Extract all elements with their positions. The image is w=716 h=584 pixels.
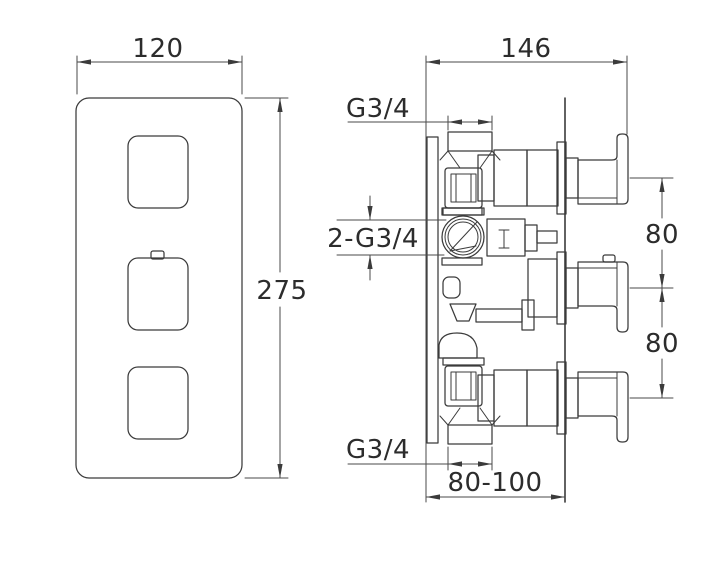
handle-spacing-lower-label: 80 — [645, 329, 679, 359]
side-view: 146 G3/4 2-G3/4 — [327, 34, 679, 502]
bottom-cartridge-step — [478, 375, 494, 421]
front-height-dim-label: 275 — [256, 276, 307, 306]
dim-recess-depth: 80-100 — [426, 468, 565, 500]
dim-handle-spacing: 80 80 — [630, 178, 679, 398]
bottom-valve-assembly — [440, 358, 628, 444]
front-width-dim-label: 120 — [132, 34, 183, 64]
top-valve-assembly — [440, 132, 628, 215]
handle-middle-side-tab — [603, 255, 615, 262]
middle-cartridge-body — [528, 259, 557, 317]
dim-outlet: 2-G3/4 — [327, 196, 446, 280]
middle-valve-body — [487, 219, 525, 256]
handle-middle-front — [128, 258, 188, 330]
blanking-plug — [443, 277, 460, 298]
top-inlet-thread-label: G3/4 — [346, 94, 410, 124]
handle-bottom-side — [578, 372, 628, 442]
dim-front-height: 275 — [245, 98, 308, 478]
technical-drawing-page: 120 275 — [0, 0, 716, 584]
top-cartridge-step — [478, 155, 494, 201]
dim-front-width: 120 — [77, 34, 242, 94]
dim-bottom-inlet: G3/4 — [346, 435, 492, 470]
outlet-thread-label: 2-G3/4 — [327, 224, 419, 254]
handle-middle-side — [578, 262, 628, 332]
trim-plate — [76, 98, 242, 478]
bottom-inlet-port — [448, 425, 492, 444]
recess-depth-range-label: 80-100 — [447, 468, 542, 498]
handle-spacing-upper-label: 80 — [645, 220, 679, 250]
front-view: 120 275 — [76, 34, 308, 478]
body-detail-features — [439, 277, 534, 358]
handle-top-front — [128, 136, 188, 208]
dim-top-inlet: G3/4 — [346, 94, 492, 130]
handle-bottom-front — [128, 367, 188, 439]
middle-valve-assembly — [442, 208, 628, 332]
mounting-bracket — [427, 137, 438, 443]
valve-dimension-drawing: 120 275 — [0, 0, 716, 584]
top-inlet-port — [448, 132, 492, 151]
handle-top-side — [578, 134, 628, 204]
bottom-inlet-thread-label: G3/4 — [346, 435, 410, 465]
side-depth-dim-label: 146 — [500, 34, 551, 64]
